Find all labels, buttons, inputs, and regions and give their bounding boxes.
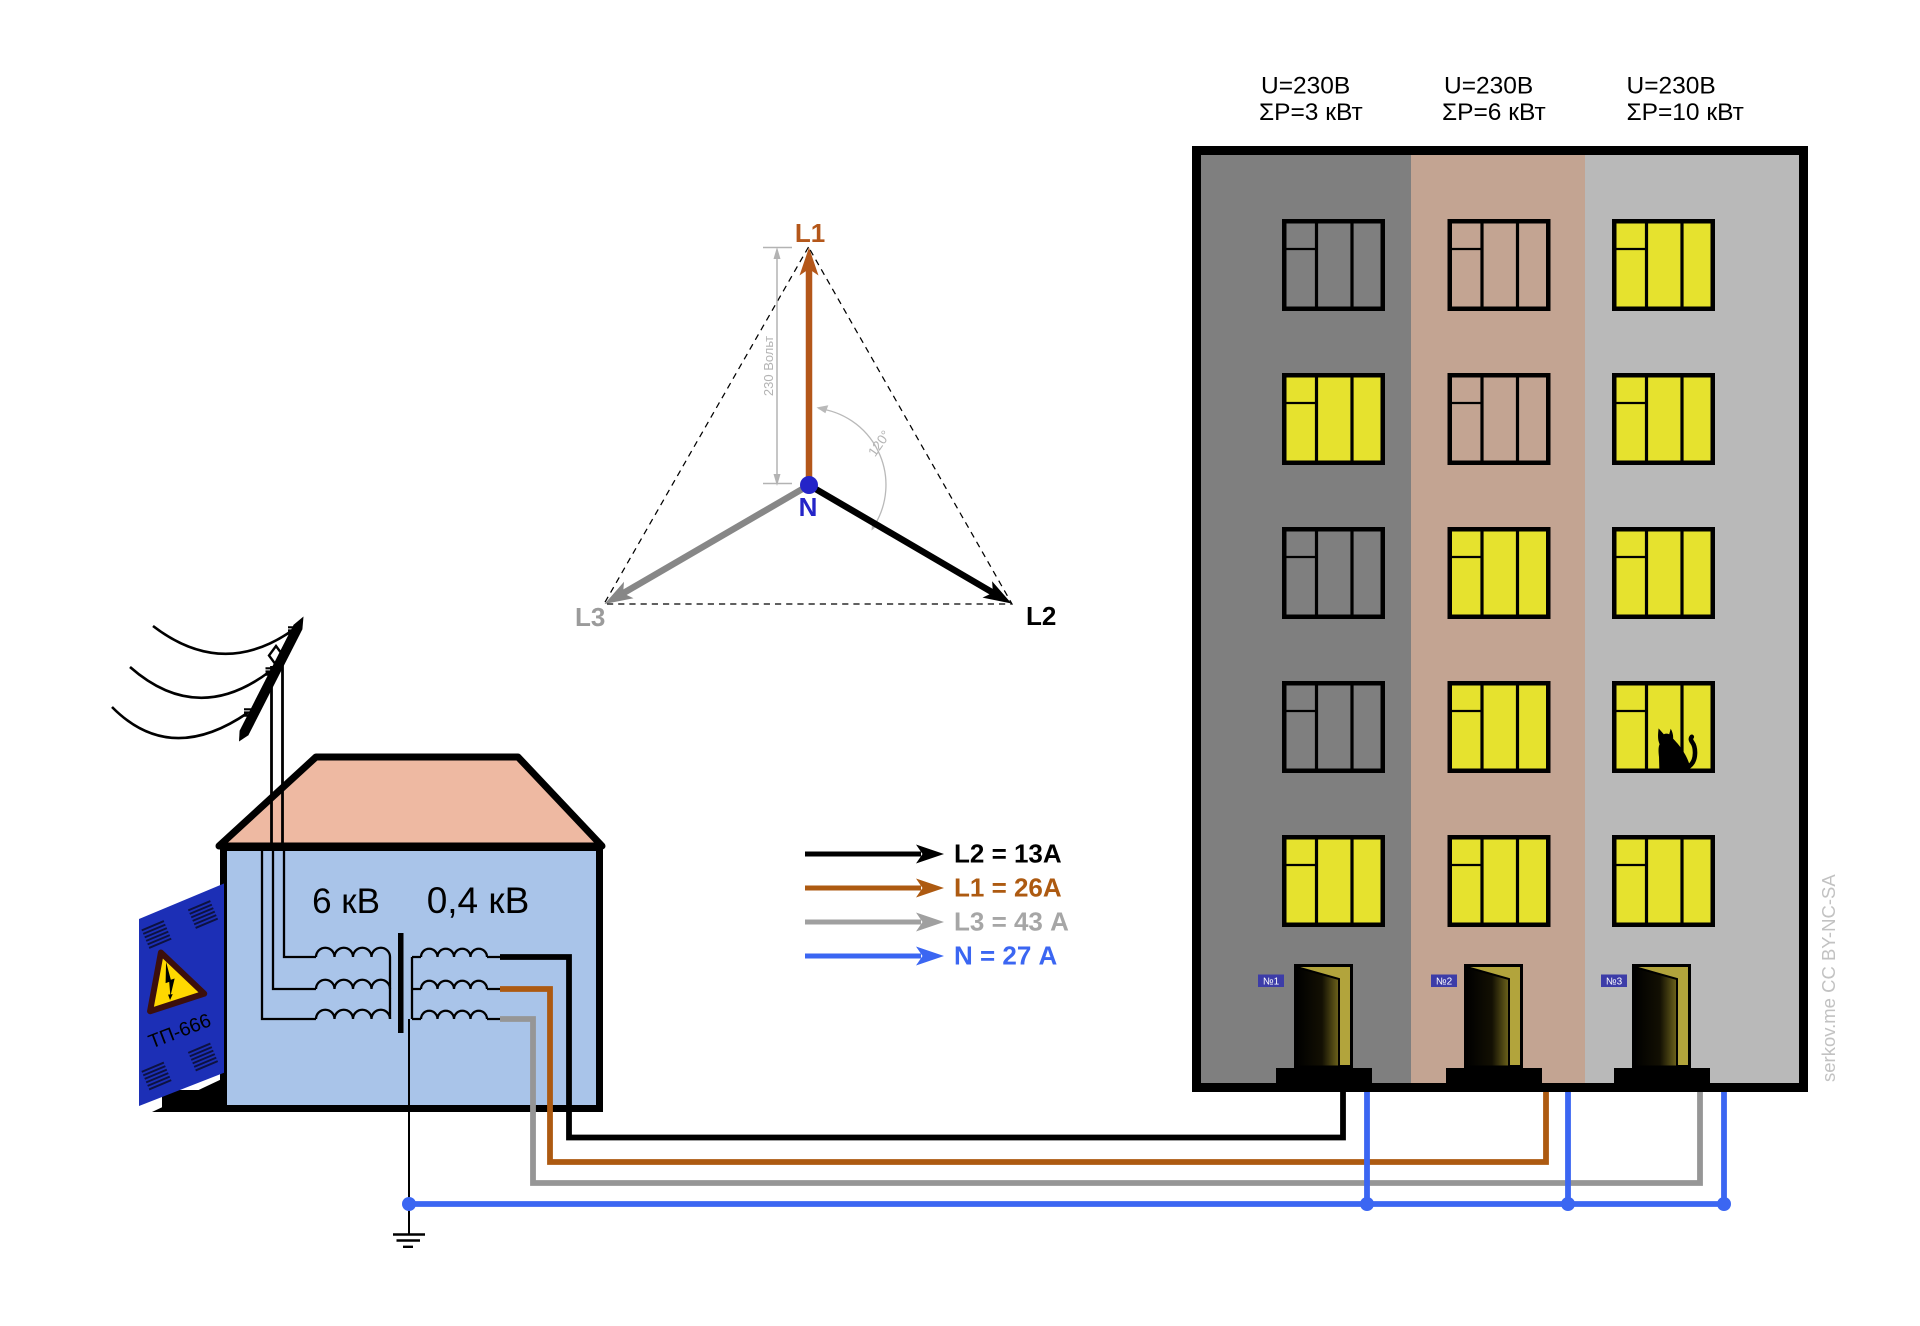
svg-text:L2: L2 bbox=[1026, 601, 1056, 631]
svg-text:N = 27 А: N = 27 А bbox=[954, 941, 1058, 971]
svg-text:№2: №2 bbox=[1436, 977, 1453, 988]
svg-text:230 Вольт: 230 Вольт bbox=[761, 336, 776, 396]
svg-text:ΣP=6 кВт: ΣP=6 кВт bbox=[1442, 99, 1546, 126]
svg-text:ΣP=3 кВт: ΣP=3 кВт bbox=[1259, 99, 1363, 126]
svg-text:L1 = 26А: L1 = 26А bbox=[954, 873, 1062, 903]
svg-text:L2 = 13А: L2 = 13А bbox=[954, 839, 1062, 869]
svg-text:L3: L3 bbox=[575, 602, 605, 632]
svg-text:N: N bbox=[799, 492, 818, 522]
svg-text:L3 = 43 А: L3 = 43 А bbox=[954, 907, 1069, 937]
svg-text:serkov.me CC BY-NC-SA: serkov.me CC BY-NC-SA bbox=[1818, 874, 1839, 1082]
svg-text:U=230В: U=230В bbox=[1627, 73, 1716, 100]
svg-text:№3: №3 bbox=[1606, 977, 1623, 988]
svg-text:U=230В: U=230В bbox=[1444, 73, 1533, 100]
svg-text:U=230В: U=230В bbox=[1261, 73, 1350, 100]
svg-text:№1: №1 bbox=[1263, 977, 1280, 988]
svg-text:6 кВ: 6 кВ bbox=[312, 882, 380, 921]
svg-text:ΣP=10 кВт: ΣP=10 кВт bbox=[1627, 99, 1744, 126]
svg-text:0,4 кВ: 0,4 кВ bbox=[427, 880, 530, 921]
svg-text:L1: L1 bbox=[795, 218, 825, 248]
